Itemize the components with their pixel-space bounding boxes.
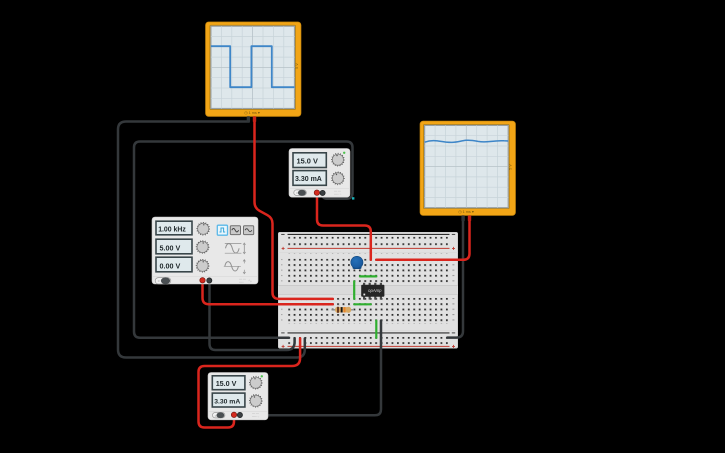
svg-text:1.00 kHz: 1.00 kHz xyxy=(158,226,186,233)
svg-text:15.0 V: 15.0 V xyxy=(216,379,237,388)
svg-text:∿: ∿ xyxy=(248,279,252,285)
svg-text:━━━ ∿: ━━━ ∿ xyxy=(251,416,260,419)
svg-text:5 V: 5 V xyxy=(509,164,513,170)
svg-text:◷ 1 ms ▾: ◷ 1 ms ▾ xyxy=(244,111,260,115)
svg-text:3.30 mA: 3.30 mA xyxy=(214,398,240,405)
svg-text:15.0 V: 15.0 V xyxy=(297,156,318,165)
svg-text:=: = xyxy=(158,280,160,284)
svg-text:opAmp: opAmp xyxy=(368,288,382,293)
svg-text:━━━: ━━━ xyxy=(238,281,244,284)
svg-text:3.30 mA: 3.30 mA xyxy=(295,176,322,183)
svg-text:5 V: 5 V xyxy=(295,63,299,69)
svg-text:5.00 V: 5.00 V xyxy=(160,243,181,252)
svg-text:=: = xyxy=(296,191,298,195)
svg-text:=: = xyxy=(215,414,217,418)
svg-text:━━━ ∿: ━━━ ∿ xyxy=(333,193,342,196)
svg-text:◷ 1 ms ▾: ◷ 1 ms ▾ xyxy=(458,210,474,214)
svg-text:0.00 V: 0.00 V xyxy=(160,261,181,270)
